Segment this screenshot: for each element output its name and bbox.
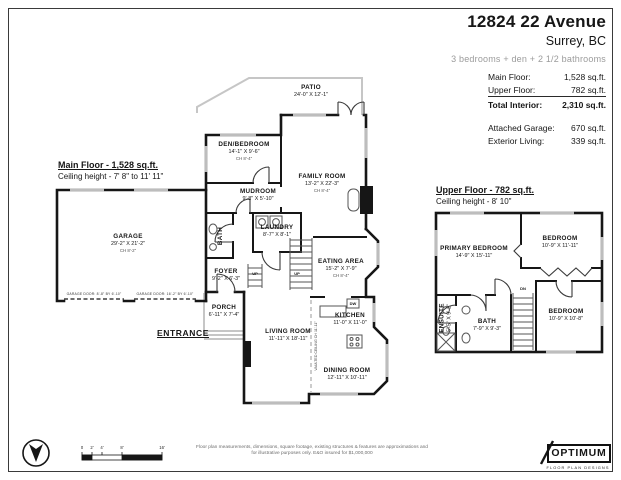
main-floor-heading: Main Floor - 1,528 sq.ft. Ceiling height… [58,160,163,181]
upper-floor-interior-walls [436,213,602,352]
bed-bath-summary: 3 bedrooms + den + 2 1/2 bathrooms [451,54,606,64]
north-arrow-icon [23,440,49,466]
room-label-foyer: FOYER 9'-2" X 6'-3" [212,268,240,283]
area-table: Main Floor: 1,528 sq.ft. Upper Floor: 78… [488,70,606,111]
area-row-upper-floor: Upper Floor: 782 sq.ft. [488,83,606,97]
room-label-bedroom-2: BEDROOM 10'-9" X 10'-8" [549,308,584,323]
media-unit [244,341,251,367]
room-label-ensuite: ENSUITE 5'-5" X 9'-2" [438,303,453,332]
room-label-garage: GARAGE 29'-2" X 21'-2" CH 8'-2" [111,233,145,254]
room-label-powder-bath: BATH [217,227,225,245]
upper-floor-walls [436,213,602,352]
room-label-laundry: LAUNDRY 8'-7" X 8'-1" [261,224,294,239]
scale-label-4: 4' [100,445,103,450]
upper-floor-stairs [513,293,533,350]
vaulted-ceiling-note: VAULTED CEILING CH 11'-11" [314,321,318,370]
fireplace [360,186,373,214]
optimum-logo: OPTIMUM [547,444,611,463]
scale-label-16: 16' [159,445,164,450]
garage-door-left-label: GARAGE DOOR: 8'-8" BY 6'-10" [67,292,122,296]
room-label-eating: EATING AREA 15'-2" X 7'-9" CH 8'-4" [318,258,364,279]
room-label-den: DEN/BEDROOM 14'-1" X 9'-6" CH 8'-4" [218,141,269,162]
stairs-up-marker: UP [252,271,258,276]
room-label-patio: PATIO 24'-0" X 12'-1" [294,84,328,99]
room-label-porch: PORCH 6'-11" X 7'-4" [209,304,240,319]
room-label-mudroom: MUDROOM 9'-8" X 5'-10" [240,188,276,203]
room-label-dining: DINING ROOM 12'-11" X 10'-11" [324,367,371,382]
room-label-kitchen: KITCHEN 11'-0" X 11'-0" [333,312,366,327]
header: 12824 22 Avenue Surrey, BC 3 bedrooms + … [451,12,606,64]
room-label-upper-bath: BATH 7'-9" X 9'-3" [473,318,501,333]
upper-floor-windows [436,213,602,352]
patio-porch-outlines [197,78,362,339]
area-row-exterior: Exterior Living: 339 sq.ft. [488,134,606,147]
floor-plan-sheet: 12824 22 Avenue Surrey, BC 3 bedrooms + … [0,0,621,480]
scale-bar [82,452,162,460]
room-label-living: LIVING ROOM 11'-11" X 18'-11" [265,328,311,343]
optimum-logo-subtitle: FLOOR PLAN DESIGNS [543,465,613,470]
page-title: 12824 22 Avenue [451,12,606,32]
area-row-main-floor: Main Floor: 1,528 sq.ft. [488,70,606,83]
room-label-bedroom-1: BEDROOM 10'-9" X 11'-11" [542,235,578,250]
disclaimer-line-2: for illustrative purposes only. E&O insu… [182,451,442,457]
fireplace-hearth [348,189,359,211]
scale-label-0: 0 [81,445,83,450]
scale-label-8: 8' [120,445,123,450]
entrance-label: ENTRANCE [157,328,209,338]
area-row-total: Total Interior: 2,310 sq.ft. [488,97,606,111]
upper-floor-heading: Upper Floor - 782 sq.ft. Ceiling height … [436,185,534,206]
room-label-primary-bedroom: PRIMARY BEDROOM 14'-9" X 15'-11" [440,245,508,260]
scale-label-2: 2' [90,445,93,450]
room-label-family: FAMILY ROOM 13'-2" X 22'-3" CH 8'-4" [298,173,345,194]
extra-area-table: Attached Garage: 670 sq.ft. Exterior Liv… [488,121,606,147]
area-row-garage: Attached Garage: 670 sq.ft. [488,121,606,134]
stairs-up-marker-2: UP [294,271,300,276]
stairs-down-marker: DN [520,286,526,291]
city-subtitle: Surrey, BC [451,34,606,48]
disclaimer: Floor plan measurements, dimensions, squ… [182,445,442,457]
dishwasher-marker: DW [350,301,357,306]
garage-door-right-label: GARAGE DOOR: 16'-2" BY 6'-10" [137,292,194,296]
